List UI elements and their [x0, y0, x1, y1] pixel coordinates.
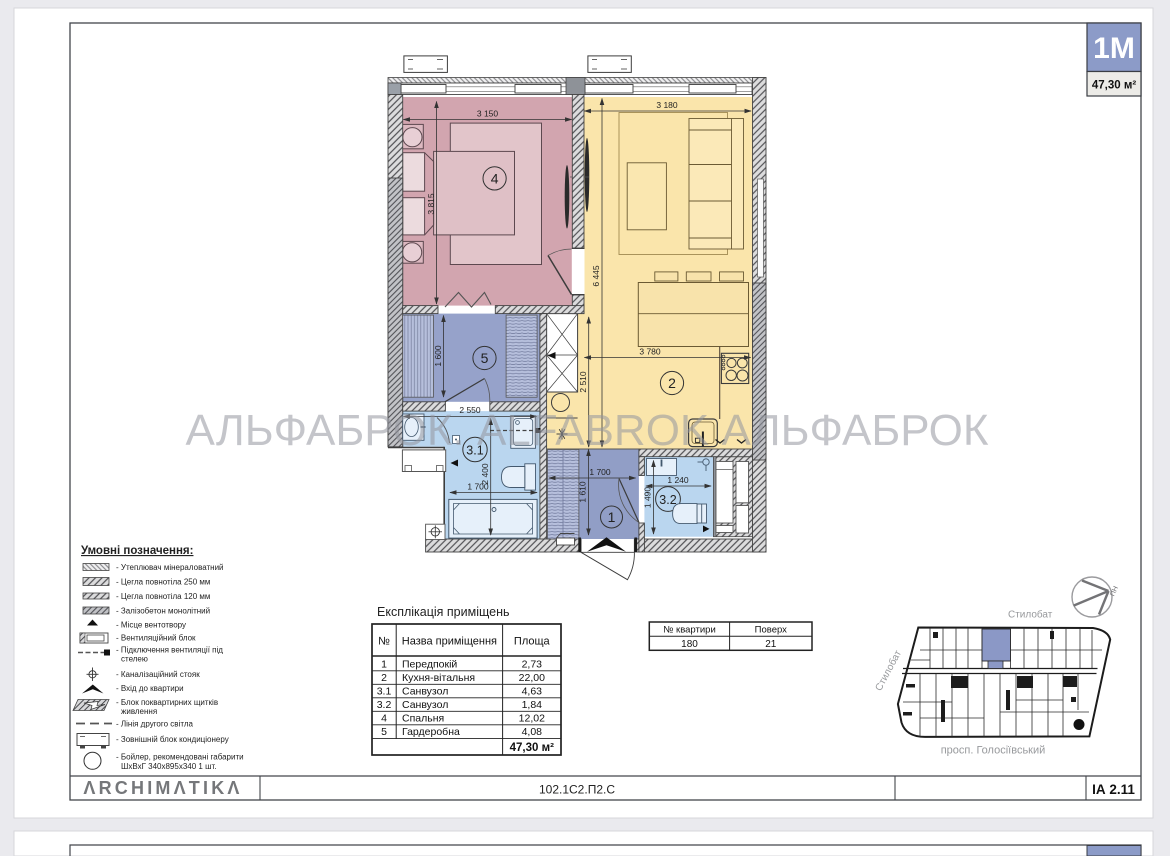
svg-text:3 150: 3 150: [477, 109, 499, 119]
svg-text:- Каналізаційний стояк: - Каналізаційний стояк: [116, 670, 200, 679]
svg-text:Назва приміщення: Назва приміщення: [402, 636, 497, 648]
svg-text:просп. Голосіївський: просп. Голосіївський: [941, 745, 1046, 757]
svg-text:- Цегла повнотіла 250 мм: - Цегла повнотіла 250 мм: [116, 578, 210, 587]
svg-text:22,00: 22,00: [519, 672, 545, 684]
svg-text:1,84: 1,84: [522, 699, 543, 711]
svg-text:2,73: 2,73: [522, 659, 543, 671]
svg-text:Передпокій: Передпокій: [402, 659, 457, 671]
svg-text:2 510: 2 510: [578, 371, 588, 393]
svg-text:- Блок поквартирних щитків: - Блок поквартирних щитків: [116, 698, 218, 707]
svg-text:- Місце вентотвору: - Місце вентотвору: [116, 621, 186, 630]
svg-text:6 445: 6 445: [591, 265, 601, 287]
svg-text:5: 5: [381, 726, 387, 738]
svg-text:Спальня: Спальня: [402, 713, 444, 725]
svg-text:АЛЬФАБРОК. ALFABROK АЛЬФАБРОК: АЛЬФАБРОК. ALFABROK АЛЬФАБРОК: [186, 406, 989, 455]
svg-text:Поверх: Поверх: [755, 625, 788, 636]
svg-text:- Зовнішній блок кондиціонеру: - Зовнішній блок кондиціонеру: [116, 735, 229, 744]
svg-text:1: 1: [608, 509, 616, 525]
svg-text:- Лінія другого світла: - Лінія другого світла: [116, 720, 193, 729]
svg-text:Санвузол: Санвузол: [402, 699, 448, 711]
svg-text:47,30 м²: 47,30 м²: [510, 742, 554, 754]
svg-text:живлення: живлення: [121, 707, 157, 716]
svg-text:4: 4: [381, 713, 387, 725]
svg-text:стелею: стелею: [121, 655, 148, 664]
svg-text:4: 4: [491, 170, 499, 186]
svg-text:4,08: 4,08: [522, 726, 543, 738]
svg-text:- Підключення вентиляції під: - Підключення вентиляції під: [116, 646, 223, 655]
svg-text:- Залізобетон монолітний: - Залізобетон монолітний: [116, 607, 210, 616]
svg-text:12,02: 12,02: [519, 713, 545, 725]
svg-text:- Цегла повнотіла 120 мм: - Цегла повнотіла 120 мм: [116, 592, 210, 601]
svg-text:Гардеробна: Гардеробна: [402, 726, 460, 738]
svg-text:1 700: 1 700: [467, 482, 489, 492]
svg-text:3.2: 3.2: [377, 699, 392, 711]
svg-text:Площа: Площа: [514, 636, 551, 648]
svg-text:Стилобат: Стилобат: [1008, 609, 1053, 621]
svg-text:Санвузол: Санвузол: [402, 686, 448, 698]
svg-text:47,30 м²: 47,30 м²: [1092, 80, 1136, 92]
svg-text:3 780: 3 780: [639, 347, 661, 357]
svg-text:3 815: 3 815: [426, 193, 436, 215]
svg-text:№ квартири: № квартири: [663, 625, 716, 636]
svg-text:2: 2: [381, 672, 387, 684]
svg-text:1 610: 1 610: [578, 481, 588, 503]
svg-text:1M: 1M: [1093, 32, 1135, 65]
svg-text:4,63: 4,63: [522, 686, 543, 698]
svg-text:№: №: [378, 636, 390, 648]
svg-text:1 600: 1 600: [433, 345, 443, 367]
svg-text:- Вентиляційний блок: - Вентиляційний блок: [116, 634, 196, 643]
svg-text:- Утеплювач мінераловатний: - Утеплювач мінераловатний: [116, 563, 224, 572]
svg-text:3.2: 3.2: [659, 493, 676, 507]
svg-text:1: 1: [381, 659, 387, 671]
svg-text:ІА 2.11: ІА 2.11: [1092, 782, 1135, 797]
svg-text:3.1: 3.1: [377, 686, 392, 698]
svg-text:2: 2: [668, 375, 676, 391]
svg-text:3 180: 3 180: [656, 100, 678, 110]
svg-text:21: 21: [765, 639, 777, 650]
svg-text:ШхВхГ 340х895х340 1 шт.: ШхВхГ 340х895х340 1 шт.: [121, 762, 217, 771]
svg-text:Умовні позначення:: Умовні позначення:: [81, 545, 193, 557]
svg-text:- Бойлер, рекомендовані габари: - Бойлер, рекомендовані габарити: [116, 753, 244, 762]
svg-text:102.1С2.П2.С: 102.1С2.П2.С: [539, 783, 615, 797]
svg-text:1 490: 1 490: [642, 487, 652, 509]
svg-text:ΛRCHIMΛTIKΛ: ΛRCHIMΛTIKΛ: [83, 778, 242, 798]
svg-text:1 240: 1 240: [667, 475, 689, 485]
svg-text:180: 180: [681, 639, 698, 650]
svg-text:- Вхід до квартири: - Вхід до квартири: [116, 684, 184, 693]
svg-text:1 700: 1 700: [589, 467, 611, 477]
svg-text:5: 5: [481, 350, 489, 366]
svg-text:Кухня-вітальня: Кухня-вітальня: [402, 672, 475, 684]
svg-text:Експлікація приміщень: Експлікація приміщень: [377, 605, 510, 619]
